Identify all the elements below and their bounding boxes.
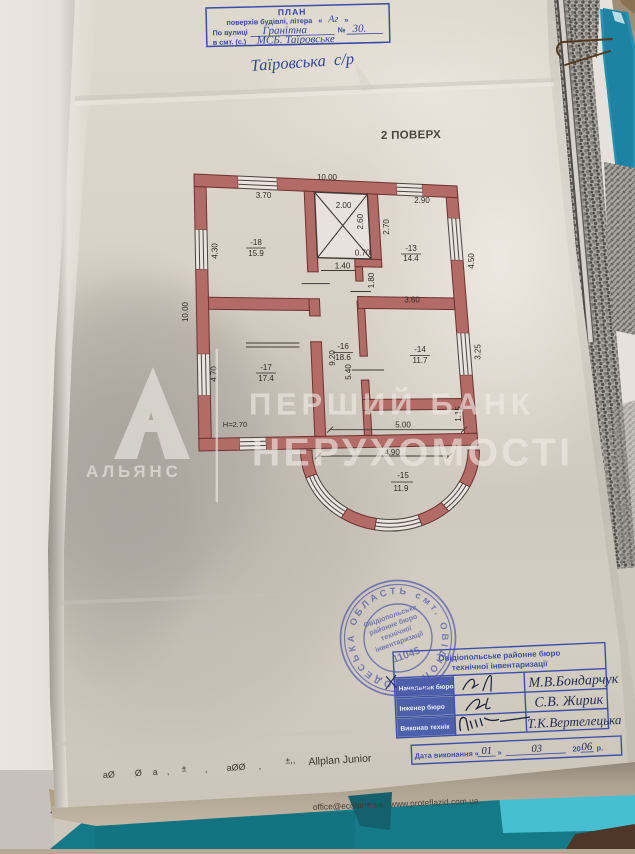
svg-text:3.60: 3.60 bbox=[404, 296, 420, 305]
svg-text:ПЕРШИЙ БАНК: ПЕРШИЙ БАНК bbox=[249, 386, 535, 422]
svg-text:5.00: 5.00 bbox=[395, 421, 411, 430]
svg-text:±,,: ±,, bbox=[285, 755, 296, 766]
svg-text:Аг: Аг bbox=[327, 14, 338, 25]
svg-text:№: № bbox=[337, 25, 345, 34]
svg-text:5.40: 5.40 bbox=[344, 364, 353, 380]
svg-text:14.4: 14.4 bbox=[403, 254, 419, 263]
svg-text:01: 01 bbox=[481, 746, 492, 757]
svg-text:-13: -13 bbox=[405, 244, 417, 253]
svg-text:aØØ: aØØ bbox=[226, 762, 246, 773]
svg-text:2 ПОВЕРХ: 2 ПОВЕРХ bbox=[381, 129, 441, 142]
svg-text:4.30: 4.30 bbox=[211, 243, 220, 259]
svg-text:H=2.70: H=2.70 bbox=[223, 420, 247, 429]
svg-text:03: 03 bbox=[531, 743, 542, 754]
svg-text:a: a bbox=[152, 767, 158, 777]
svg-text:11.9: 11.9 bbox=[394, 484, 410, 493]
svg-text:С.В. Жирик: С.В. Жирик bbox=[534, 693, 604, 711]
svg-text:aØ: aØ bbox=[103, 769, 116, 780]
svg-text:18.6: 18.6 bbox=[335, 353, 351, 362]
svg-text:10.00: 10.00 bbox=[181, 301, 190, 322]
svg-text:1.80: 1.80 bbox=[367, 272, 376, 288]
svg-text:15.9: 15.9 bbox=[248, 249, 264, 258]
svg-text:17.4: 17.4 bbox=[258, 374, 274, 383]
svg-text:-18: -18 bbox=[250, 238, 262, 247]
svg-text:11.7: 11.7 bbox=[413, 356, 429, 365]
svg-text:4.50: 4.50 bbox=[467, 253, 476, 269]
svg-text:2.70: 2.70 bbox=[382, 219, 391, 235]
svg-text:3.25: 3.25 bbox=[474, 344, 483, 360]
svg-text:По вулиці: По вулиці bbox=[212, 28, 247, 38]
svg-text:-14: -14 bbox=[414, 345, 426, 354]
svg-text:МСБ. Таїровське: МСБ. Таїровське bbox=[256, 33, 335, 47]
svg-text:АЛЬЯНС: АЛЬЯНС bbox=[86, 462, 182, 481]
svg-text:3.70: 3.70 bbox=[256, 191, 272, 200]
svg-text:Ø: Ø bbox=[134, 768, 142, 778]
svg-text:1.40: 1.40 bbox=[335, 262, 351, 271]
svg-text:06: 06 bbox=[581, 741, 593, 753]
svg-text:30.: 30. bbox=[351, 23, 366, 35]
svg-text:2.00: 2.00 bbox=[336, 201, 352, 210]
svg-text:2.60: 2.60 bbox=[356, 213, 365, 229]
svg-text:-16: -16 bbox=[337, 342, 349, 351]
svg-text:0.70: 0.70 bbox=[355, 249, 371, 258]
svg-text:«: « bbox=[318, 16, 322, 25]
svg-text:р.: р. bbox=[596, 743, 603, 752]
svg-text:10.00: 10.00 bbox=[317, 173, 338, 182]
svg-text:»: » bbox=[344, 15, 348, 24]
svg-text:-17: -17 bbox=[260, 363, 272, 372]
svg-text:2.90: 2.90 bbox=[414, 196, 430, 205]
svg-text:»: » bbox=[497, 748, 502, 757]
svg-text:в смт. (с.): в смт. (с.) bbox=[213, 37, 247, 47]
svg-text:20: 20 bbox=[572, 744, 581, 753]
svg-text:±: ± bbox=[181, 763, 187, 773]
svg-text:НЕРУХОМОСТІ: НЕРУХОМОСТІ bbox=[252, 432, 573, 475]
